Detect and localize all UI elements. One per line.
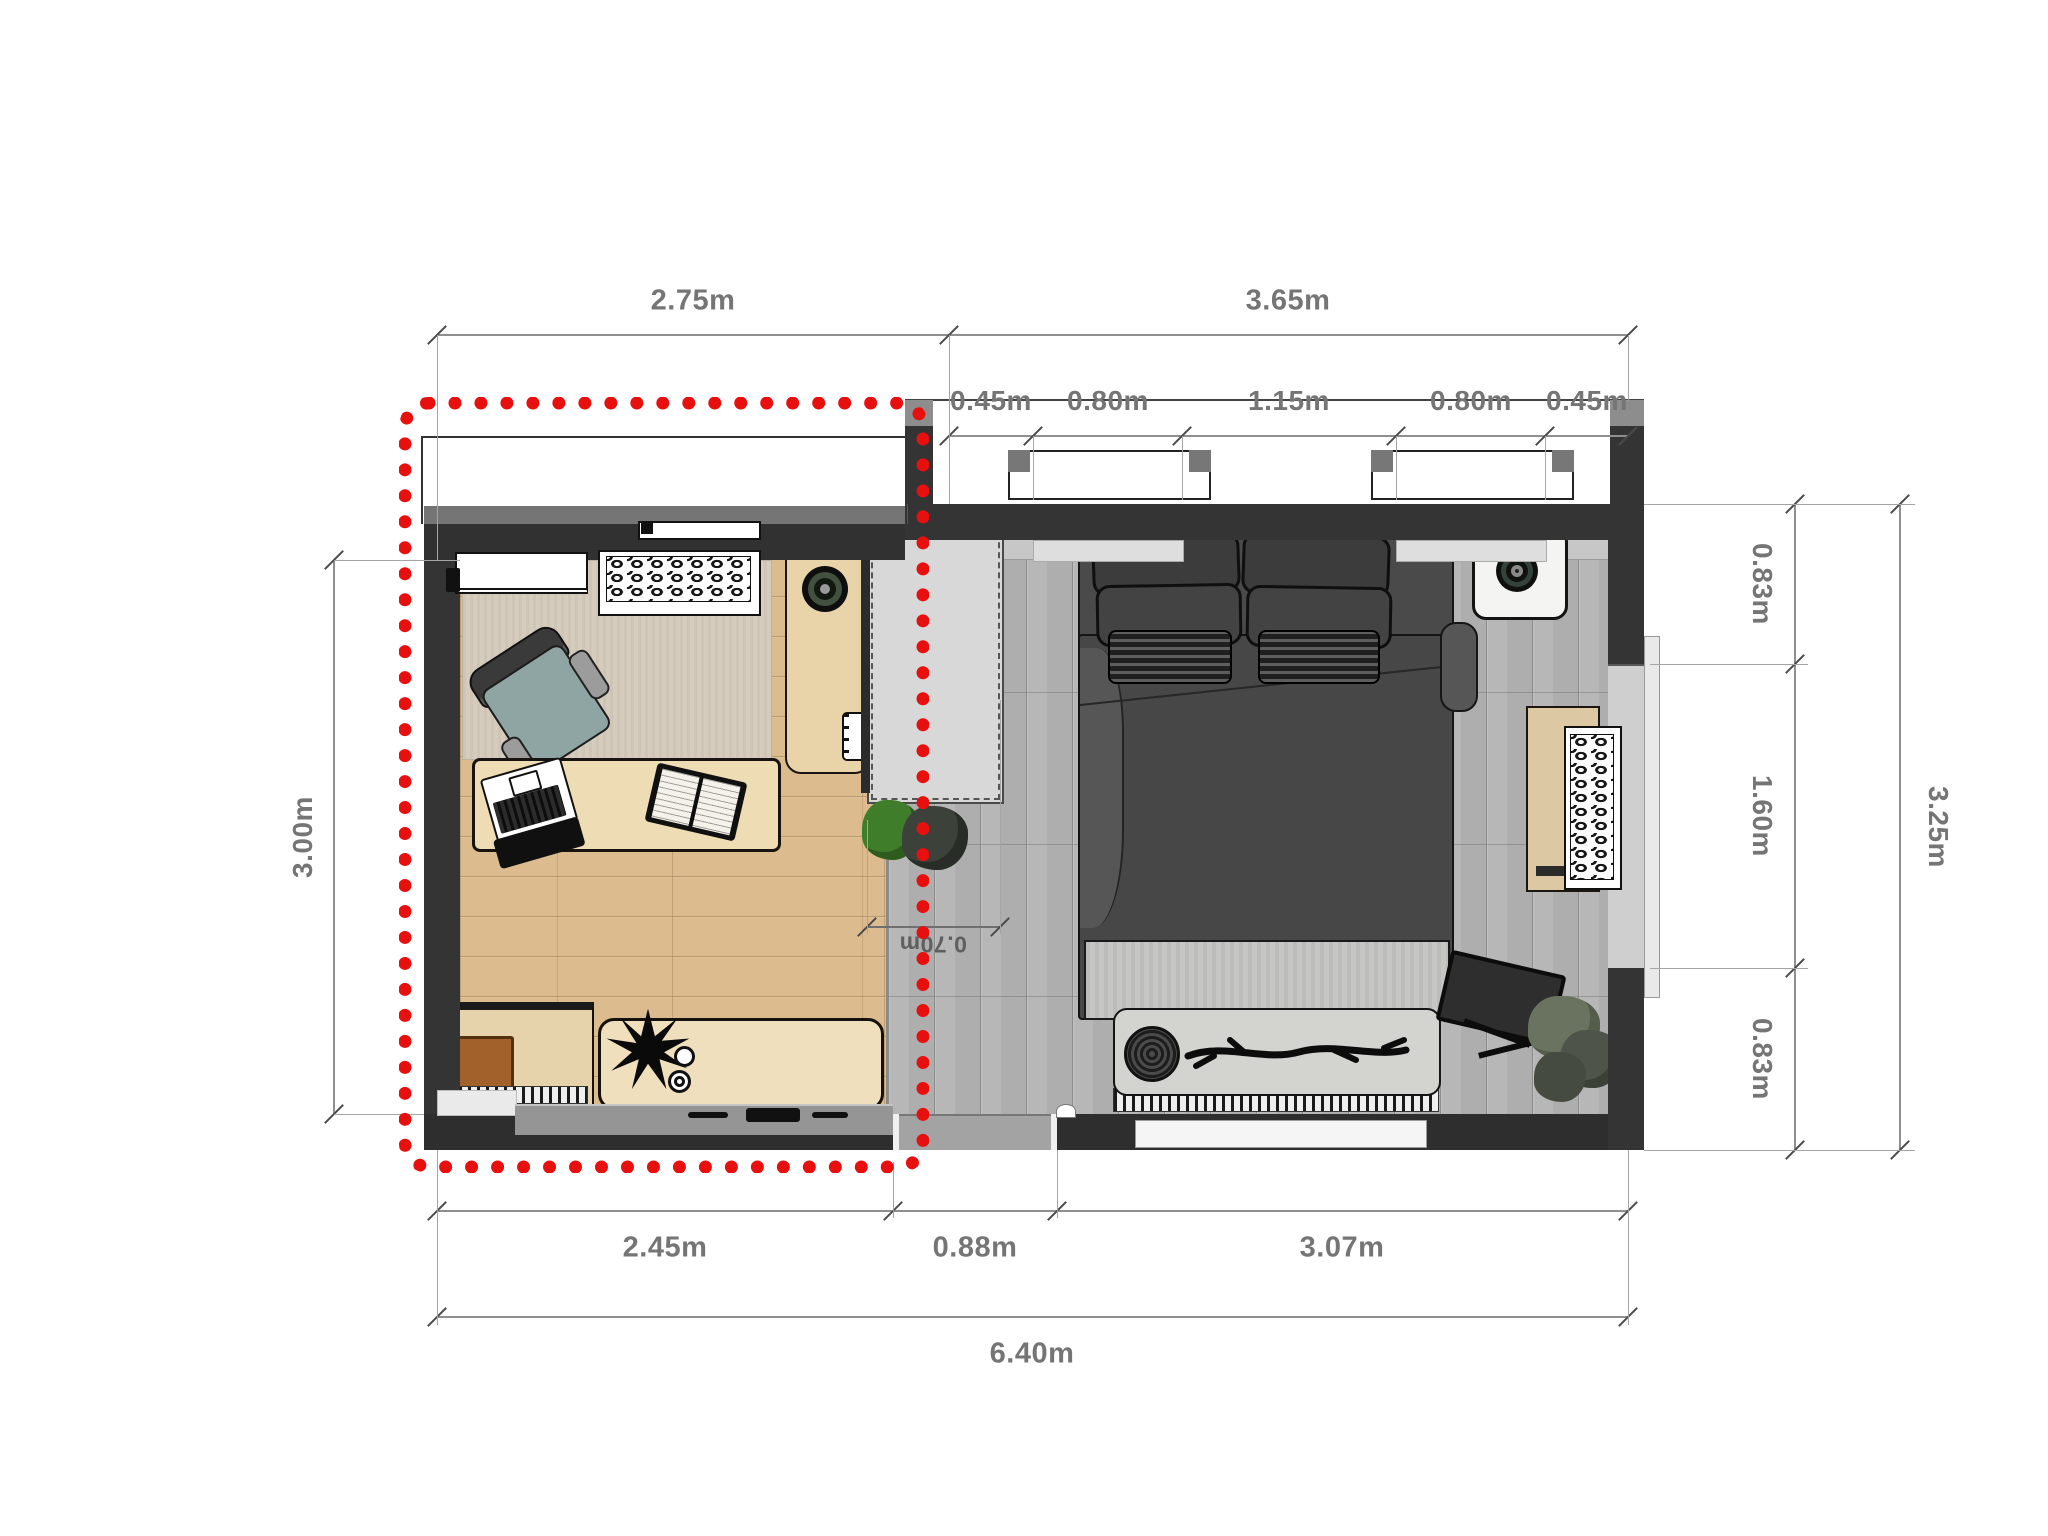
wall-top-bedroom [905, 504, 1644, 540]
woven-basket [1108, 630, 1232, 684]
woven-basket [1258, 630, 1380, 684]
dresser-handle [1536, 866, 1564, 876]
window-frame-cap [1552, 450, 1574, 472]
dim-label: 0.45m [950, 385, 1032, 417]
dim-line-bottom [437, 1210, 1628, 1212]
ext-line [949, 335, 950, 504]
dim-label: 1.60m [1746, 775, 1778, 857]
ext-line [1644, 1150, 1915, 1151]
branch-decor-icon [1184, 1030, 1414, 1074]
dim-label: 0.83m [1746, 1018, 1778, 1100]
dim-label: 0.80m [1430, 385, 1512, 417]
dim-label-top-right: 3.65m [1246, 285, 1331, 318]
corner-plant-icon [1534, 1052, 1586, 1102]
ext-line [1650, 968, 1808, 969]
dim-label: 0.88m [933, 1232, 1018, 1265]
dim-label-right-total: 3.25m [1922, 786, 1954, 868]
window-sill-right [1644, 636, 1660, 998]
dim-label: 3.07m [1300, 1232, 1385, 1265]
ext-line [1545, 436, 1546, 500]
door-stop-icon [1056, 1104, 1076, 1118]
dim-line-top [437, 334, 1628, 336]
woven-disc-icon [1124, 1026, 1180, 1082]
dim-label: 0.45m [1546, 385, 1628, 417]
window-frame [1008, 450, 1211, 500]
window-frame [1371, 450, 1574, 500]
dim-line-right-outer [1899, 504, 1901, 1150]
wall-right-lower [1608, 968, 1644, 1150]
dim-line-right-inner [1794, 504, 1796, 1150]
ext-line [437, 1150, 438, 1325]
speaker-center [1515, 569, 1519, 573]
ext-line [1628, 335, 1629, 401]
window-sill [1033, 540, 1184, 562]
dim-label: 1.15m [1248, 385, 1330, 417]
dresser-rattan [1570, 734, 1614, 880]
dim-label: 0.83m [1746, 543, 1778, 625]
dim-label-top-left: 2.75m [651, 285, 736, 318]
duvet-fold-flap [1080, 648, 1124, 928]
dim-label-bottom-total: 6.40m [990, 1338, 1075, 1371]
ext-line [1182, 436, 1183, 500]
bottom-wall-window [1135, 1120, 1427, 1148]
ext-line [1644, 504, 1915, 505]
window-frame-cap [1371, 450, 1393, 472]
ext-line [1628, 1150, 1629, 1325]
floor-plan: 2.75m 3.65m 0.45m 0.80m 1.15m 0.80m 0.45… [0, 0, 2048, 1536]
ext-line [1033, 436, 1034, 500]
dim-line-top-sub [949, 435, 1628, 437]
dim-label: 0.80m [1067, 385, 1149, 417]
window-frame-cap [1189, 450, 1211, 472]
dim-line-left [333, 560, 335, 1114]
duvet-edge-curl [1440, 622, 1478, 712]
ext-line [1396, 436, 1397, 500]
wall-right-upper [1608, 504, 1644, 664]
ext-line [1650, 664, 1808, 665]
ext-line [1000, 700, 1001, 934]
window-frame-cap [1008, 450, 1030, 472]
dim-label-left: 3.00m [287, 796, 319, 878]
dim-line-bottom-total [437, 1316, 1628, 1318]
dim-label: 2.45m [623, 1232, 708, 1265]
door-gap [1051, 1114, 1057, 1150]
ext-line [1057, 1150, 1058, 1218]
window-sill [1396, 540, 1547, 562]
highlight-zone-box [399, 397, 929, 1173]
